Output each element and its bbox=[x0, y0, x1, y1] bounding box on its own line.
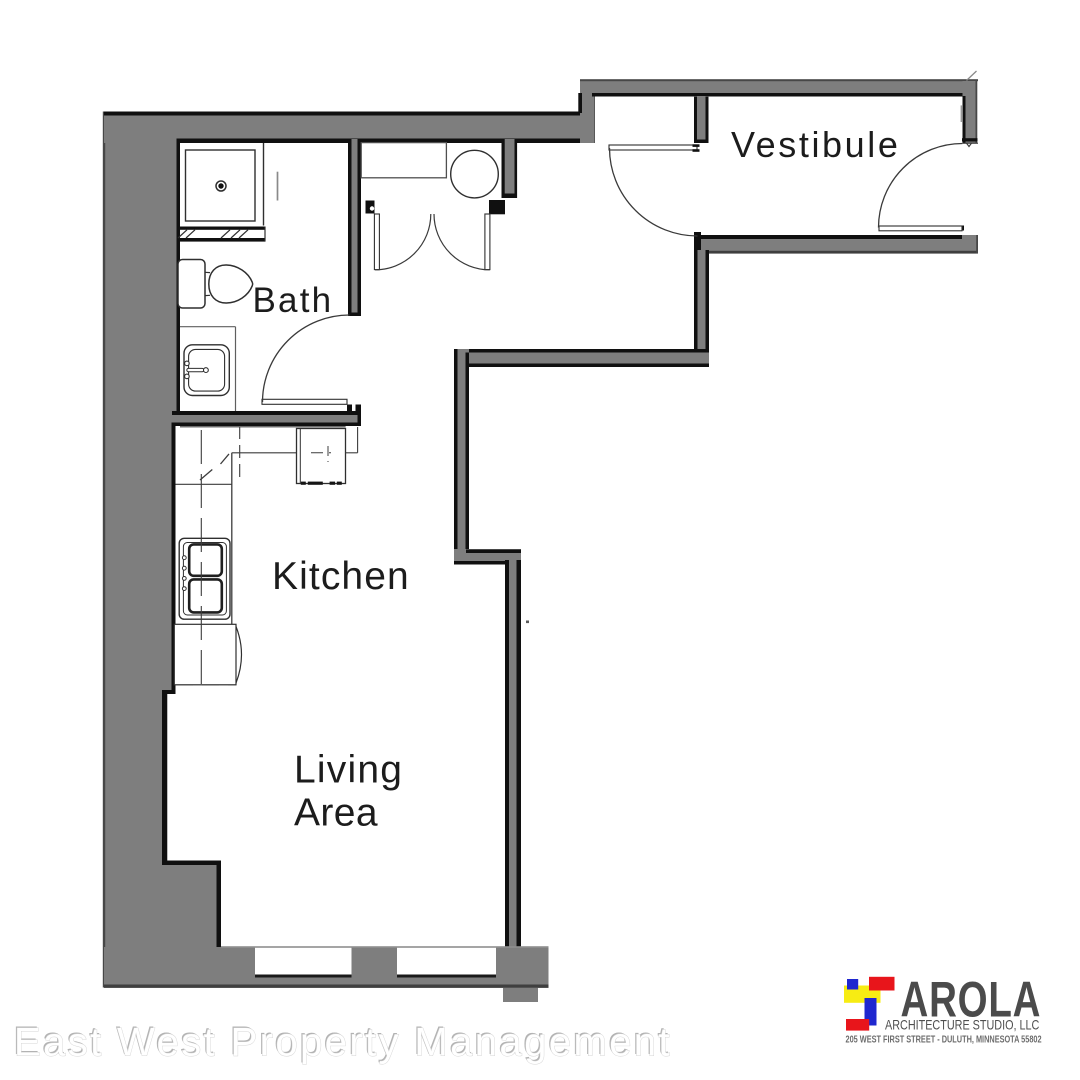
svg-text:Bath: Bath bbox=[253, 281, 334, 320]
svg-text:East West Property Management: East West Property Management bbox=[14, 1021, 672, 1065]
svg-text:ARCHITECTURE STUDIO, LLC: ARCHITECTURE STUDIO, LLC bbox=[885, 1017, 1039, 1033]
svg-text:Living: Living bbox=[294, 748, 403, 791]
svg-text:205 WEST FIRST STREET - DULUTH: 205 WEST FIRST STREET - DULUTH, MINNESOT… bbox=[846, 1033, 1042, 1045]
svg-text:Vestibule: Vestibule bbox=[731, 124, 901, 165]
svg-text:Kitchen: Kitchen bbox=[272, 555, 410, 598]
svg-text:Area: Area bbox=[294, 792, 378, 835]
